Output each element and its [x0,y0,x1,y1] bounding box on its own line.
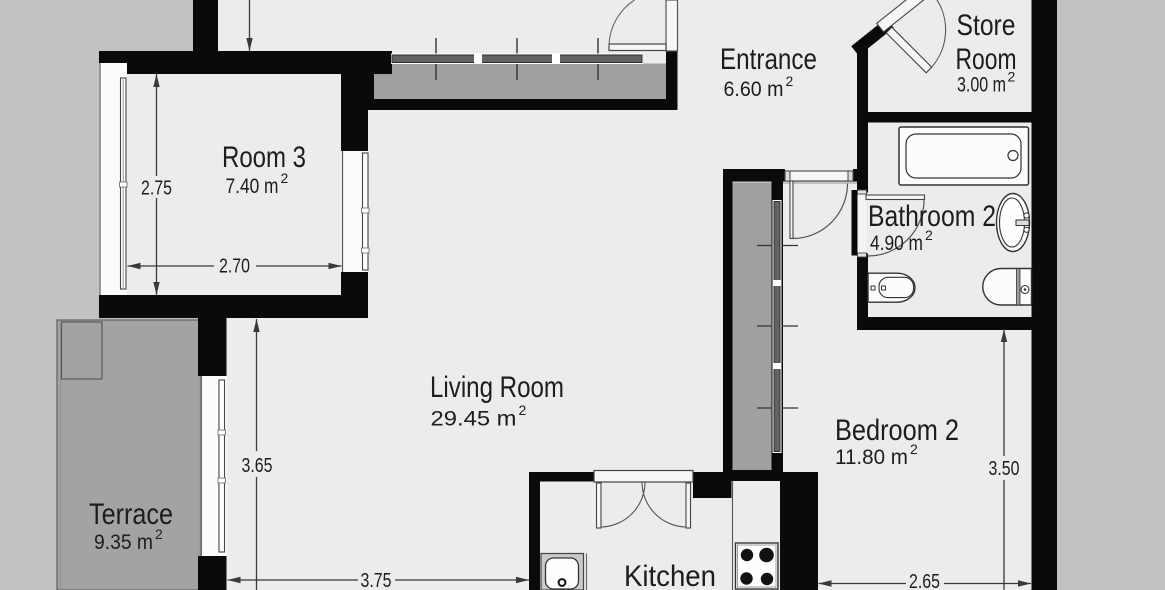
svg-text:2: 2 [281,170,289,186]
svg-text:3.50: 3.50 [989,458,1020,480]
svg-text:2: 2 [910,441,918,457]
svg-text:Store: Store [957,9,1016,42]
svg-text:Bedroom 2: Bedroom 2 [835,414,959,447]
svg-text:2.65: 2.65 [909,571,940,590]
svg-text:3.00 m: 3.00 m [957,74,1006,97]
svg-text:11.80 m: 11.80 m [835,446,908,469]
svg-text:2: 2 [925,227,933,243]
svg-text:3.65: 3.65 [242,455,273,477]
svg-text:2.75: 2.75 [141,178,172,200]
svg-text:Entrance: Entrance [720,43,817,76]
svg-text:6.60 m: 6.60 m [724,78,784,101]
svg-text:29.45 m: 29.45 m [431,408,517,431]
svg-text:Living Room: Living Room [430,371,564,404]
svg-text:2: 2 [155,526,163,542]
svg-text:4.90 m: 4.90 m [870,232,923,255]
svg-text:Room 3: Room 3 [222,141,306,174]
svg-text:3.75: 3.75 [361,570,392,590]
svg-text:2.70: 2.70 [219,256,250,278]
svg-text:9.35 m: 9.35 m [94,531,153,554]
svg-text:7.40 m: 7.40 m [226,175,279,198]
svg-text:2: 2 [519,402,527,418]
svg-text:2: 2 [786,73,794,89]
svg-text:Kitchen: Kitchen [624,560,716,590]
svg-text:2: 2 [1008,69,1016,85]
